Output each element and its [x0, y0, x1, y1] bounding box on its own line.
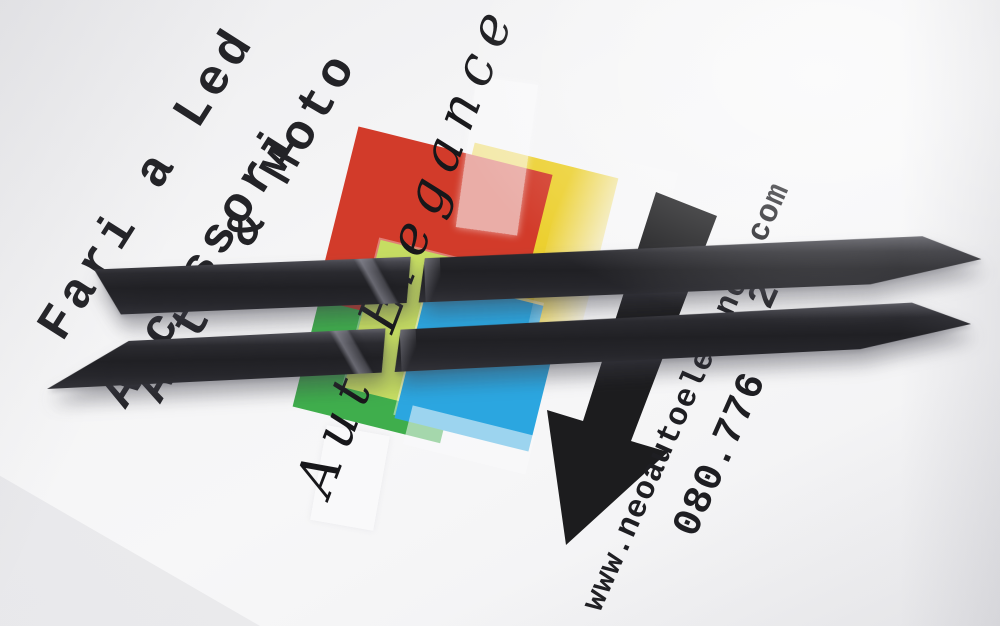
strip-end-cap: [324, 329, 384, 376]
strip-seam-highlight: [424, 256, 442, 303]
strip-end-cap: [349, 257, 409, 305]
strip-seam-highlight: [400, 327, 418, 372]
product-photo: Fari a Led Accessori Auto & Moto AutoEle…: [0, 0, 1000, 626]
